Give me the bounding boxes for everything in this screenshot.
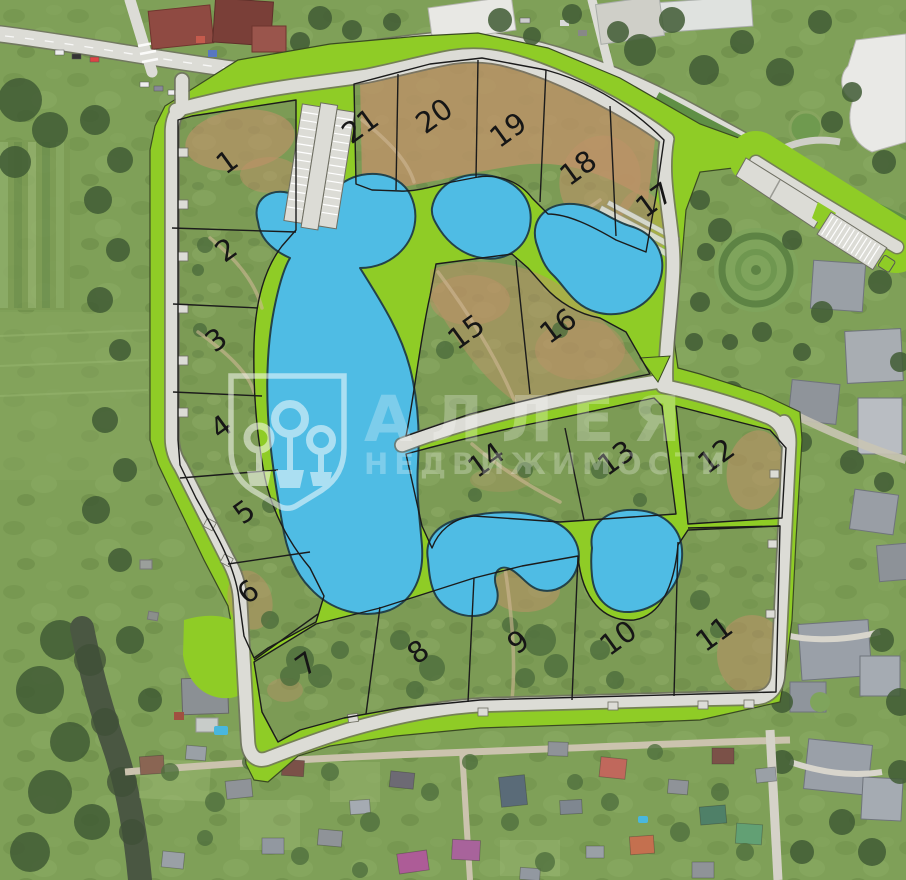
watermark-title: АЛЛЕЯ <box>364 383 699 456</box>
backyard-pool <box>638 816 648 823</box>
watermark-subtitle: НЕДВИЖИМОСТИ <box>364 447 731 481</box>
pool <box>214 726 228 735</box>
aerial-masterplan: 123456789101112131415161718192021 АЛЛЕЯ … <box>0 0 906 880</box>
masterplan-svg: 123456789101112131415161718192021 АЛЛЕЯ … <box>0 0 906 880</box>
